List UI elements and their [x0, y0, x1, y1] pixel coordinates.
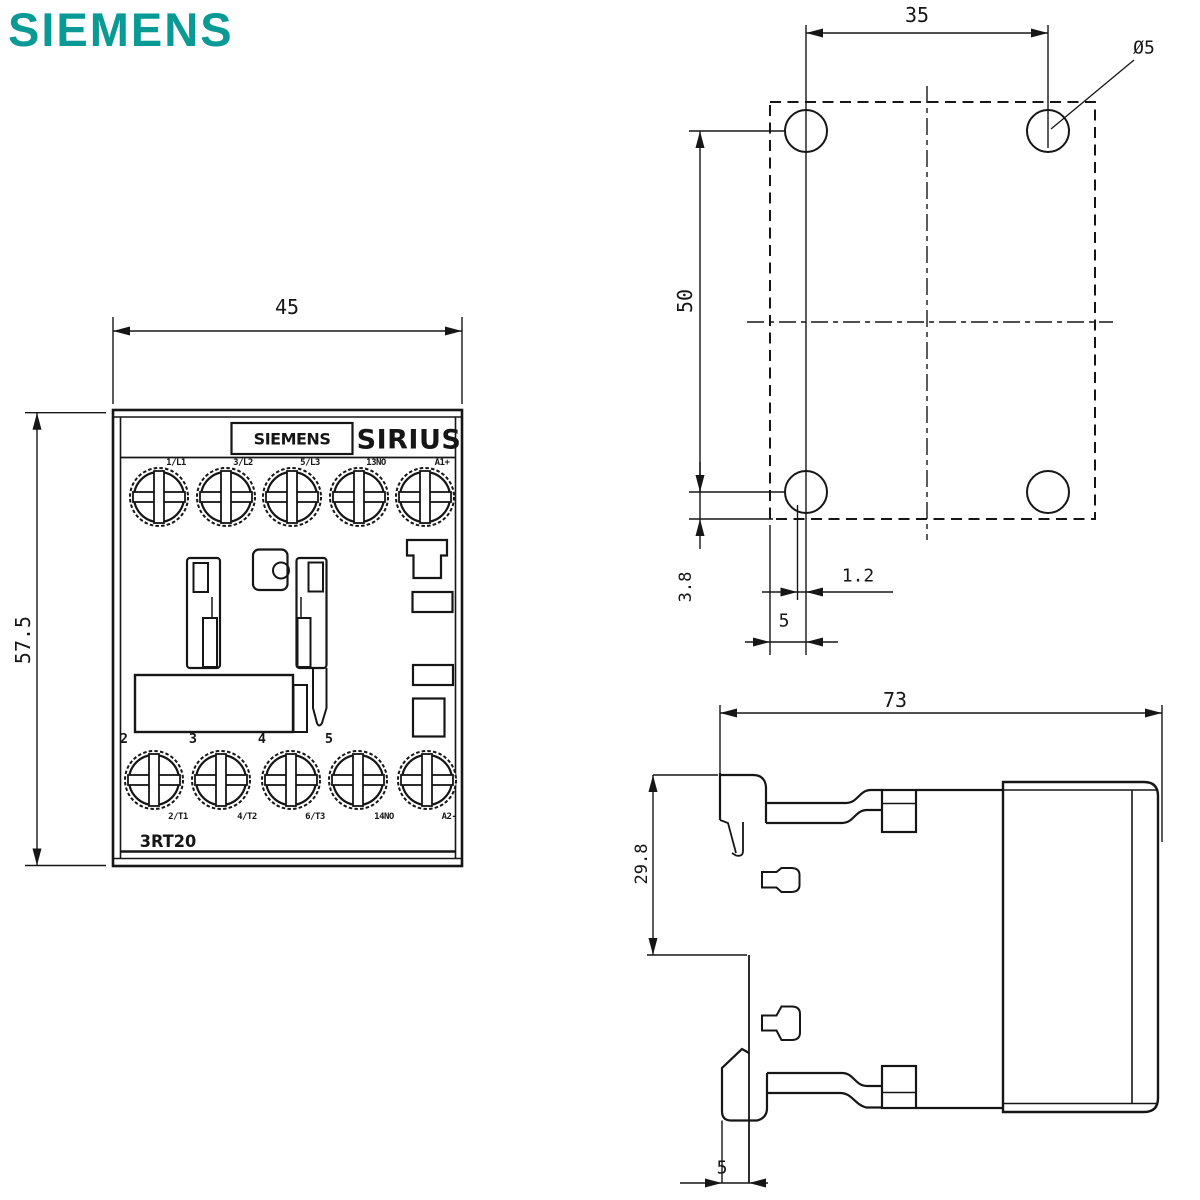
right-release-slot [297, 558, 327, 726]
hole-spacing-v-label: 50 [673, 289, 697, 313]
dimension-arrowhead [33, 849, 42, 866]
dimension-arrowhead [649, 938, 658, 955]
terminal-number: 2 [120, 731, 128, 747]
rail-clip-height-label: 29.8 [632, 844, 652, 885]
front-height-label: 57.5 [11, 616, 35, 664]
front-width-dimension [113, 317, 462, 404]
dimension-arrowhead [806, 588, 823, 597]
dimension-arrows [33, 29, 1163, 1188]
dimension-arrowhead [113, 327, 130, 336]
terminal-label-bottom: 6/T3 [305, 812, 325, 822]
depth-dimension [720, 705, 1162, 842]
coil-housing [1003, 782, 1158, 1112]
label-plate [135, 675, 293, 732]
dimension-arrowhead [753, 638, 770, 647]
top-terminal-screws [130, 468, 454, 526]
terminal-label-bottom: 4/T2 [237, 812, 257, 822]
series-label: SIRIUS [357, 425, 462, 456]
rail-clip-height-dimension [647, 775, 747, 955]
bottom-terminal-block [882, 1066, 916, 1108]
terminal-number: 3 [189, 731, 197, 747]
dimension-arrowhead [781, 588, 798, 597]
dimension-arrowhead [696, 131, 705, 148]
dimension-arrowhead [696, 519, 705, 536]
terminal-label-top: 5/L3 [300, 458, 320, 468]
side-view-drawing [647, 705, 1162, 1183]
rail-slot-width-label: 5 [779, 611, 790, 632]
device-outline-dashed [770, 102, 1095, 519]
terminal-label-top: 3/L2 [233, 458, 253, 468]
hole-diameter-leader [1051, 60, 1134, 129]
dimension-arrowhead [696, 475, 705, 492]
top-rail-hook [720, 820, 736, 853]
terminal-label-bottom: 14NO [374, 812, 394, 822]
lower-guide-stud [762, 1007, 800, 1041]
dimension-arrowhead [649, 775, 658, 792]
dimension-arrowhead [720, 709, 737, 718]
rail-depth-label: 5 [717, 1158, 728, 1179]
dimension-arrowhead [705, 1179, 722, 1188]
label-plate-edge [294, 685, 308, 732]
terminal-label-bottom: 2/T1 [168, 812, 188, 822]
drawing-lines [0, 0, 1200, 1200]
terminal-label-bottom: A2- [442, 812, 457, 822]
bottom-rail-clip [722, 1049, 767, 1121]
front-width-label: 45 [275, 295, 299, 319]
drilling-pattern-drawing [689, 25, 1134, 655]
terminal-label-top: 1/L1 [166, 458, 186, 468]
brand-label: SIEMENS [254, 430, 331, 449]
siemens-logo: SIEMENS [8, 2, 234, 57]
upper-guide-stud [762, 868, 800, 892]
dimension-arrowhead [445, 327, 462, 336]
dimension-arrowhead [806, 29, 823, 38]
dimension-drawing-page: SIEMENS 45 57.5 SIEMENS SIRIUS 3RT20 1/L… [0, 0, 1200, 1200]
front-view-drawing [25, 317, 462, 866]
dimension-arrowhead [749, 1179, 766, 1188]
bottom-terminal-screws [125, 751, 456, 809]
top-terminal-block [882, 790, 916, 832]
left-release-slot [187, 558, 220, 668]
terminal-number: 5 [325, 731, 333, 747]
rail-offset-label: 1.2 [842, 566, 875, 587]
hole-spacing-v-dimension [689, 131, 786, 492]
hole-spacing-h-label: 35 [905, 3, 929, 27]
terminal-label-top: 13NO [366, 458, 386, 468]
dimension-arrowhead [33, 413, 42, 430]
right-column-features [407, 540, 453, 737]
hole-diameter-label: Ø5 [1133, 38, 1155, 59]
depth-label: 73 [883, 688, 907, 712]
center-keyhole [253, 550, 289, 591]
bottom-offset-label: 3.8 [676, 572, 696, 603]
terminal-label-top: A1+ [435, 458, 450, 468]
front-height-dimension [25, 413, 106, 866]
dimension-arrowhead [1031, 29, 1048, 38]
dimension-arrowhead [806, 638, 823, 647]
type-label: 3RT20 [140, 832, 196, 852]
terminal-number: 4 [258, 731, 266, 747]
dimension-arrowhead [1145, 709, 1162, 718]
